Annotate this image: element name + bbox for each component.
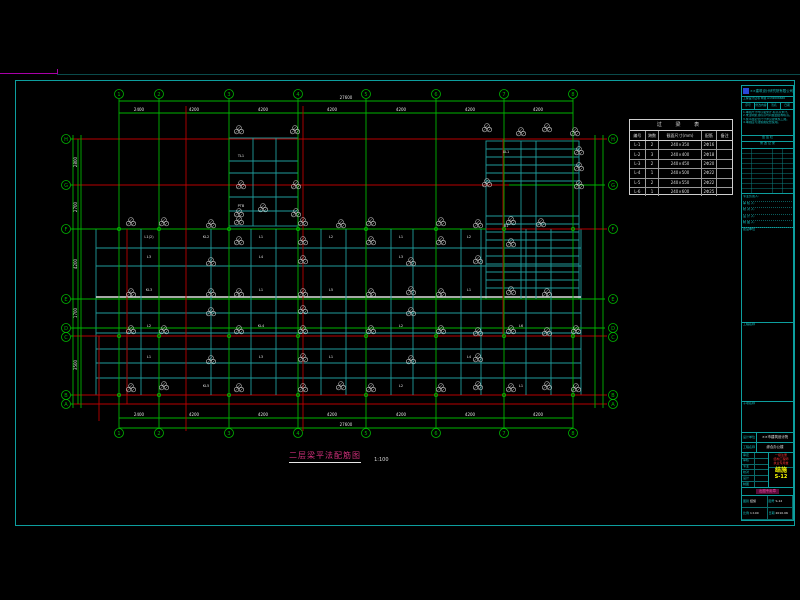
client-box: 建设单位 (742, 228, 793, 323)
beam-size-cell: 240×350 (659, 141, 701, 149)
svg-text:A: A (611, 402, 615, 408)
svg-text:4: 4 (296, 431, 299, 437)
svg-text:2800: 2800 (73, 156, 78, 167)
signoff-value (755, 476, 768, 481)
approval-col: 日期 (781, 103, 793, 109)
sheet-type-small: 结施 (750, 500, 756, 504)
svg-text:4200: 4200 (258, 107, 269, 112)
beam-table-row: L-2 3 240×400 2Φ18 (630, 150, 732, 159)
signoff-label: 审核 (742, 459, 755, 464)
beam-schedule-table: 过 梁 表 编号 跨数 截面尺寸(mm) 配筋 备注 L-1 2 240×350… (629, 119, 733, 195)
beam-note-cell (717, 141, 732, 149)
title-block: ××建筑设计研究院有限公司 工程设计证书 甲级 A132006666 序号 修改… (741, 85, 794, 521)
svg-text:3500: 3500 (73, 359, 78, 370)
beam-note-cell (717, 188, 732, 196)
signature-line: 设 计 人: (743, 215, 792, 222)
svg-text:A: A (64, 402, 68, 408)
svg-text:27600: 27600 (340, 422, 353, 427)
svg-text:L1: L1 (259, 235, 263, 239)
approval-header: 序号 修改内容 签名 日期 (742, 103, 793, 110)
svg-text:4200: 4200 (327, 107, 338, 112)
svg-text:L1: L1 (147, 355, 151, 359)
svg-text:L4: L4 (259, 255, 264, 259)
meta-grid: 图别结施 图号S-12 比例1:100 日期2010.06 (742, 496, 793, 520)
svg-text:4: 4 (296, 92, 299, 98)
svg-text:2: 2 (157, 92, 160, 98)
svg-text:L2: L2 (147, 324, 151, 328)
svg-text:L2: L2 (399, 324, 403, 328)
beam-table-row: L-1 2 240×350 2Φ16 (630, 141, 732, 150)
svg-text:6: 6 (434, 431, 437, 437)
beam-size-cell: 240×550 (659, 179, 701, 187)
svg-text:2400: 2400 (134, 107, 145, 112)
beam-id-cell: L-1 (630, 141, 646, 149)
svg-text:6: 6 (434, 92, 437, 98)
signoff-value (755, 459, 768, 464)
sheet-number-value: S-12 (775, 474, 788, 480)
beam-size-cell: 240×400 (659, 150, 701, 158)
revision-rows (742, 149, 793, 193)
design-org-label: 设计单位 (742, 433, 757, 442)
svg-text:KL5: KL5 (203, 384, 209, 388)
signoff-value (755, 465, 768, 470)
svg-text:KL2: KL2 (203, 235, 209, 239)
svg-text:TL1: TL1 (237, 154, 244, 158)
beam-table-row: L-3 2 240×450 2Φ20 (630, 160, 732, 169)
svg-text:2: 2 (157, 431, 160, 437)
beam-rebar-cell: 2Φ25 (702, 188, 718, 196)
beam-rebar-cell: 2Φ20 (702, 160, 718, 168)
beam-table-row: L-4 1 240×500 2Φ22 (630, 169, 732, 178)
svg-text:L1: L1 (399, 235, 403, 239)
plot-stamp-row: 出图专用章 (742, 488, 793, 496)
approval-col: 修改内容 (755, 103, 768, 109)
beam-id-cell: L-5 (630, 179, 646, 187)
svg-text:4200: 4200 (189, 107, 200, 112)
sheet-no-small: S-12 (776, 500, 783, 504)
svg-text:4200: 4200 (258, 412, 269, 417)
svg-text:1: 1 (117, 431, 120, 437)
beam-table-header-cell: 编号 (630, 131, 646, 140)
svg-text:8: 8 (571, 92, 574, 98)
project-name-row: 工程名称 综合办公楼 (742, 443, 793, 453)
signature-line: 校 对 人: (743, 208, 792, 215)
beam-rebar-cell: 2Φ16 (702, 141, 718, 149)
svg-text:G: G (611, 183, 615, 189)
beam-id-cell: L-6 (630, 188, 646, 196)
beam-size-cell: 240×600 (659, 188, 701, 196)
signoff-label: 校对 (742, 470, 755, 475)
note-line: 4.本图应与建施图配合使用。 (743, 121, 792, 124)
beam-span-cell: 2 (646, 141, 660, 149)
svg-text:7: 7 (502, 431, 505, 437)
revision-table: 修 改 记 录 (742, 142, 793, 194)
svg-text:XL1: XL1 (503, 150, 510, 154)
beam-rebar-cell: 2Φ18 (702, 150, 718, 158)
revision-title: 修 改 记 录 (742, 142, 793, 149)
svg-text:L3: L3 (399, 255, 403, 259)
subproject-box-label: 子项名称 (743, 402, 755, 406)
beam-size-cell: 240×450 (659, 160, 701, 168)
svg-text:H: H (64, 137, 68, 143)
svg-text:PTB: PTB (238, 204, 245, 208)
beam-note-cell (717, 169, 732, 177)
beam-id-cell: L-3 (630, 160, 646, 168)
svg-text:3: 3 (227, 92, 230, 98)
svg-text:L1: L1 (467, 288, 471, 292)
drawing-title-text: 二层梁平法配筋图 (289, 450, 361, 463)
signoff-label: 审定 (742, 453, 755, 458)
svg-text:1700: 1700 (73, 307, 78, 318)
signoff-value (755, 470, 768, 475)
svg-text:C: C (64, 335, 68, 341)
signoff-grid: 审定 审核 专业 校对 设计 (742, 453, 793, 488)
svg-text:B1: B1 (504, 224, 509, 228)
svg-text:D: D (64, 326, 68, 332)
svg-text:4200: 4200 (533, 412, 544, 417)
offsheet-teal-line (57, 74, 800, 75)
svg-text:27600: 27600 (340, 95, 353, 100)
company-logo-icon (743, 88, 749, 94)
project-name-value: 综合办公楼 (757, 443, 793, 452)
beam-table-row: L-5 2 240×550 2Φ22 (630, 179, 732, 188)
svg-text:4200: 4200 (327, 412, 338, 417)
company-name: ××建筑设计研究院有限公司 (750, 89, 793, 93)
drawing-title: 二层梁平法配筋图 1:100 (289, 443, 429, 457)
company-row: ××建筑设计研究院有限公司 (742, 86, 793, 97)
beam-span-cell: 2 (646, 160, 660, 168)
project-box-label: 工程名称 (743, 323, 755, 327)
beam-rebar-cell: 2Φ22 (702, 179, 718, 187)
signature-line: 专业负责人: (743, 195, 792, 202)
beam-table-header-cell: 截面尺寸(mm) (659, 131, 701, 140)
svg-text:G: G (64, 183, 68, 189)
license-stamp-text: 一级注册结构工程师执业专用章 (769, 453, 793, 468)
signature-line: 审 核 人: (743, 202, 792, 209)
beam-size-cell: 240×500 (659, 169, 701, 177)
signoff-label: 设计 (742, 476, 755, 481)
svg-text:L6: L6 (519, 324, 523, 328)
scale-value: 1:100 (750, 512, 759, 516)
beam-table-header-cell: 配筋 (702, 131, 718, 140)
svg-text:L2: L2 (399, 384, 403, 388)
beam-span-cell: 1 (646, 169, 660, 177)
svg-text:L1: L1 (259, 288, 263, 292)
svg-text:E: E (611, 297, 614, 303)
svg-text:L2: L2 (329, 235, 333, 239)
svg-text:4200: 4200 (73, 258, 78, 269)
project-box: 工程名称 (742, 323, 793, 402)
svg-text:L2: L2 (467, 235, 471, 239)
beam-note-cell (717, 160, 732, 168)
svg-text:H: H (611, 137, 615, 143)
svg-text:8: 8 (571, 431, 574, 437)
signoff-label: 专业 (742, 465, 755, 470)
svg-text:KL4: KL4 (258, 324, 265, 328)
beam-table-header-cell: 跨数 (646, 131, 660, 140)
sheet-border: 1234567812345678HGFEDCBAHGFEDCBA27600240… (15, 80, 795, 526)
svg-text:L5: L5 (329, 288, 333, 292)
beam-span-cell: 2 (646, 179, 660, 187)
svg-text:4200: 4200 (465, 412, 476, 417)
svg-text:4200: 4200 (465, 107, 476, 112)
svg-text:5: 5 (364, 92, 367, 98)
svg-text:4200: 4200 (533, 107, 544, 112)
svg-text:L4: L4 (467, 355, 472, 359)
svg-text:E: E (64, 297, 67, 303)
approval-col: 签名 (768, 103, 781, 109)
cad-viewport[interactable]: 1234567812345678HGFEDCBAHGFEDCBA27600240… (0, 0, 800, 600)
signoff-label: 制图 (742, 482, 755, 487)
svg-text:L1(2): L1(2) (144, 235, 154, 239)
signoff-value (755, 453, 768, 458)
svg-text:C: C (611, 335, 615, 341)
svg-text:D: D (611, 326, 615, 332)
svg-text:2400: 2400 (134, 412, 145, 417)
date-value: 2010.06 (776, 512, 788, 516)
license-line: 执业专用章 (769, 462, 793, 466)
svg-text:F: F (612, 227, 615, 233)
client-box-label: 建设单位 (743, 228, 755, 232)
plot-stamp: 出图专用章 (756, 489, 779, 493)
svg-text:L1: L1 (519, 384, 523, 388)
svg-text:5: 5 (364, 431, 367, 437)
beam-id-cell: L-2 (630, 150, 646, 158)
title-block-fields: 设计单位 ××市建筑设计院 工程名称 综合办公楼 审定 (742, 433, 793, 520)
svg-text:L3: L3 (147, 255, 151, 259)
beam-table-header: 编号 跨数 截面尺寸(mm) 配筋 备注 (630, 131, 732, 141)
svg-text:L1: L1 (329, 355, 333, 359)
design-org-value: ××市建筑设计院 (757, 433, 793, 442)
svg-text:2700: 2700 (73, 201, 78, 212)
beam-id-cell: L-4 (630, 169, 646, 177)
svg-text:F: F (65, 227, 68, 233)
design-org-row: 设计单位 ××市建筑设计院 (742, 433, 793, 443)
beam-rebar-cell: 2Φ22 (702, 169, 718, 177)
signoff-row: 制图 (742, 482, 768, 487)
beam-note-cell (717, 179, 732, 187)
sheet-no-label: 图号 (769, 500, 775, 504)
svg-text:KL3: KL3 (146, 288, 152, 292)
beam-span-cell: 3 (646, 150, 660, 158)
sheet-type-value: 结施 (775, 468, 787, 475)
general-notes: 1.本图尺寸均以毫米计,标高以米计。2.未注明梁顶标高均同板面结构标高。3.梁平… (742, 110, 793, 136)
scale-label: 比例 (743, 512, 749, 516)
drawing-scale: 1:100 (374, 457, 388, 463)
beam-note-cell (717, 150, 732, 158)
beam-table-header-cell: 备注 (717, 131, 732, 140)
beam-table-row: L-6 1 240×600 2Φ25 (630, 188, 732, 196)
svg-text:L3: L3 (259, 355, 263, 359)
beam-table-title: 过 梁 表 (630, 120, 732, 131)
svg-text:4200: 4200 (396, 412, 407, 417)
beam-span-cell: 1 (646, 188, 660, 196)
sheet-type-label: 图别 (743, 500, 749, 504)
svg-text:4200: 4200 (189, 412, 200, 417)
signature-list: 专业负责人:审 核 人:校 对 人:设 计 人:制 图 人: (742, 194, 793, 228)
date-label: 日期 (769, 512, 775, 516)
svg-text:7: 7 (502, 92, 505, 98)
project-name-label: 工程名称 (742, 443, 757, 452)
svg-text:B: B (611, 393, 615, 399)
svg-text:3: 3 (227, 431, 230, 437)
svg-text:1: 1 (117, 92, 120, 98)
svg-text:4200: 4200 (396, 107, 407, 112)
signoff-value (755, 482, 768, 487)
offsheet-magenta-line (0, 73, 57, 74)
svg-text:B: B (64, 393, 68, 399)
subproject-box: 子项名称 (742, 402, 793, 433)
approval-col: 序号 (742, 103, 755, 109)
